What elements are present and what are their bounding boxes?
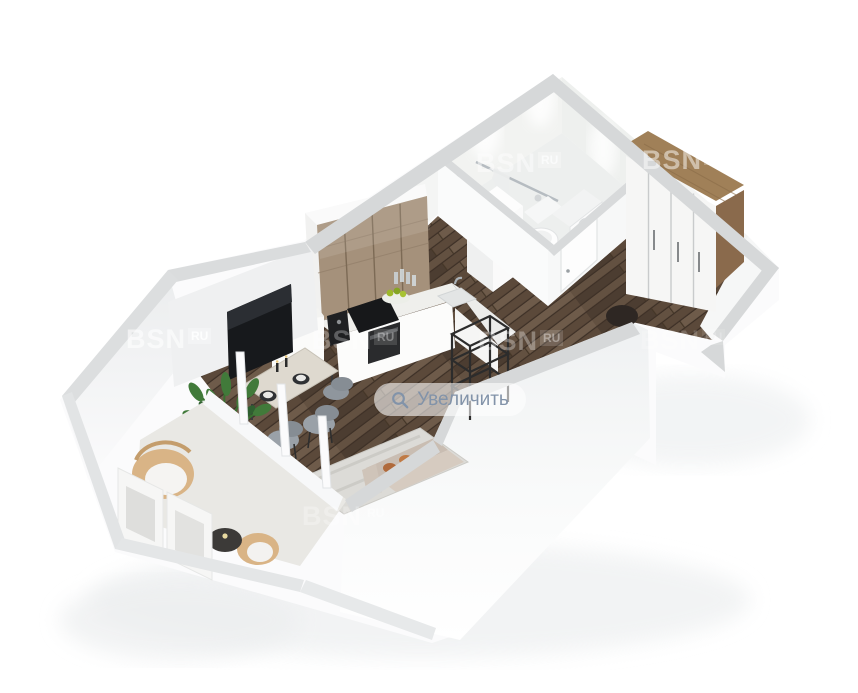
entry-mat bbox=[606, 305, 638, 327]
floorplan-viewer: BSNRU BSNRU BSNRU BSNRU BSNRU BSNRU BSNR… bbox=[0, 0, 858, 693]
balcony-table bbox=[208, 528, 242, 552]
door-handle bbox=[566, 269, 570, 273]
search-icon bbox=[391, 391, 409, 409]
candle bbox=[222, 533, 227, 538]
toilet-paper-holder bbox=[535, 195, 542, 202]
coffee-machine bbox=[327, 310, 350, 346]
floorplan-3d-render bbox=[0, 0, 858, 693]
zoom-button-label: Увеличить bbox=[417, 389, 509, 411]
zoom-button[interactable]: Увеличить bbox=[374, 383, 526, 416]
rattan-chair bbox=[237, 533, 279, 565]
